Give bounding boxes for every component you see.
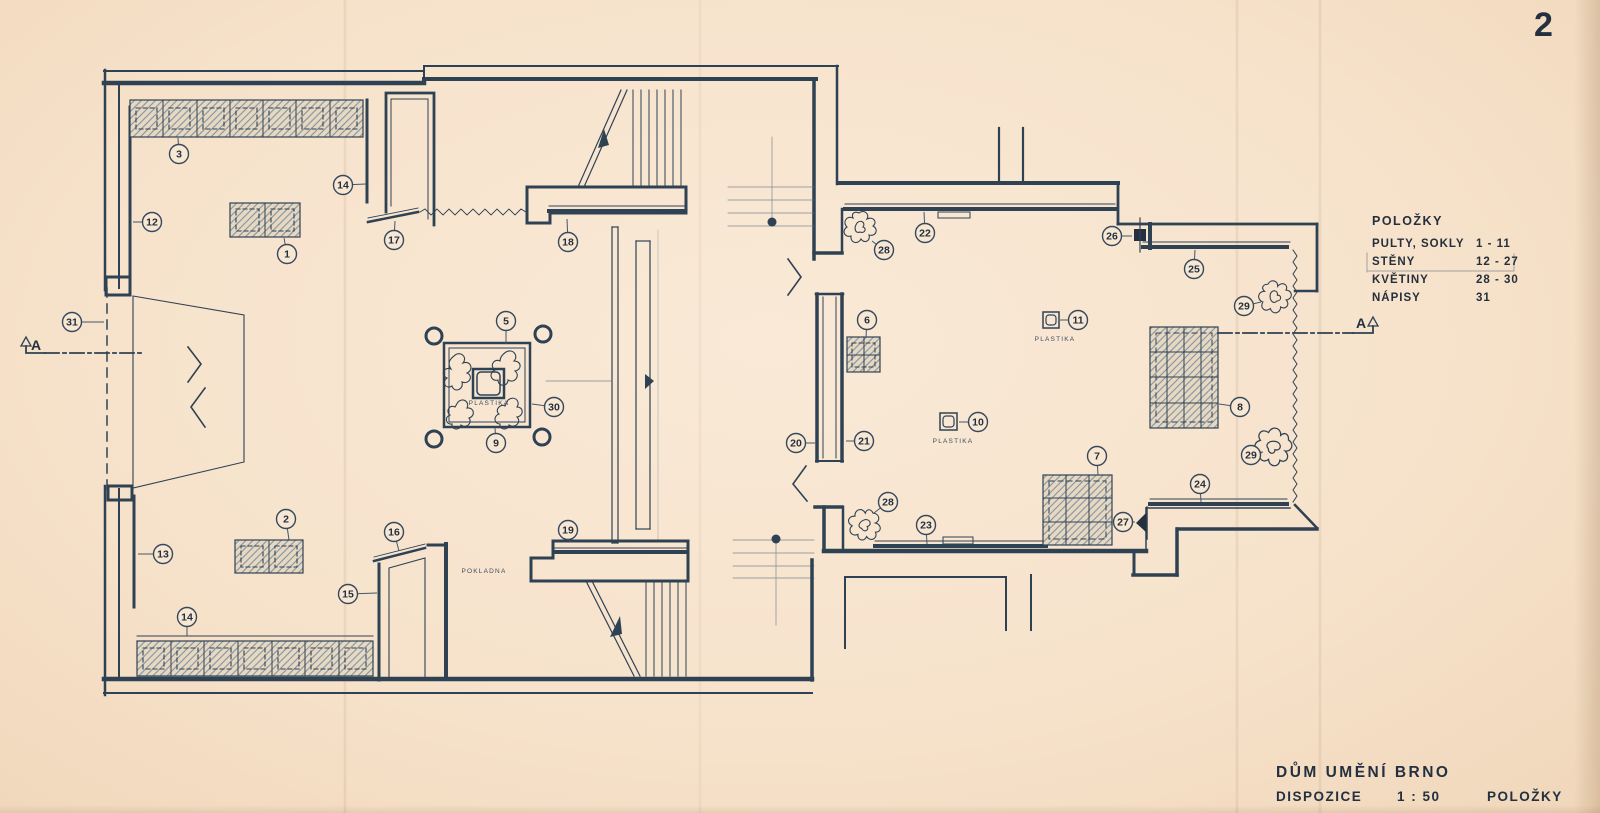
- svg-text:15: 15: [342, 589, 354, 601]
- svg-text:9: 9: [493, 438, 499, 450]
- bottom-staircase-hall: [374, 535, 814, 681]
- section-letter-a-left: A: [31, 337, 41, 353]
- central-ramp: [546, 227, 658, 543]
- item-marker-17: 17: [385, 221, 404, 250]
- legend-label: KVĚTINY: [1372, 271, 1476, 289]
- platform-7: [1043, 475, 1112, 545]
- room-label: PLASTIKA: [1035, 336, 1076, 343]
- room-label: PLASTIKA: [469, 400, 510, 407]
- svg-text:1: 1: [284, 249, 290, 261]
- item-marker-2: 2: [277, 510, 296, 541]
- svg-text:18: 18: [562, 237, 574, 249]
- svg-text:16: 16: [388, 527, 400, 539]
- floor-plan-drawing: A A 123567891011121314141516171819202122…: [0, 0, 1600, 813]
- svg-text:17: 17: [388, 235, 400, 247]
- flower-bed-sculpture: [426, 326, 551, 447]
- item-marker-21: 21: [846, 432, 874, 451]
- top-staircase-hall: [368, 66, 838, 259]
- svg-text:21: 21: [858, 436, 870, 448]
- sheet-name: POLOŽKY: [1487, 789, 1563, 804]
- legend-value: 31: [1476, 289, 1491, 307]
- item-marker-11: 11: [1060, 311, 1088, 330]
- legend-row: STĚNY 12 - 27: [1372, 253, 1542, 271]
- item-marker-5: 5: [497, 312, 516, 345]
- scanned-floor-plan-page: { "page_number": "2", "legend": { "title…: [0, 0, 1600, 813]
- svg-text:14: 14: [337, 180, 349, 192]
- item-marker-23: 23: [917, 516, 936, 545]
- svg-text:11: 11: [1072, 315, 1083, 327]
- legend-row: NÁPISY 31: [1372, 289, 1542, 307]
- item-marker-7: 7: [1088, 447, 1107, 476]
- room-label: PLASTIKA: [933, 438, 974, 445]
- legend-value: 1 - 11: [1476, 235, 1511, 253]
- svg-text:5: 5: [503, 316, 509, 328]
- svg-text:27: 27: [1117, 517, 1129, 529]
- item-marker-29: 29: [1235, 297, 1262, 316]
- svg-text:7: 7: [1094, 451, 1100, 463]
- item-marker-19: 19: [559, 521, 578, 543]
- item-marker-16: 16: [385, 523, 404, 552]
- svg-text:13: 13: [157, 549, 169, 561]
- left-gallery-walls: [104, 66, 812, 695]
- svg-text:6: 6: [864, 315, 870, 327]
- legend-row: PULTY, SOKLY 1 - 11: [1372, 235, 1542, 253]
- item-marker-9: 9: [487, 428, 506, 453]
- item-marker-8: 8: [1219, 398, 1250, 417]
- room-label: POKLADNA: [461, 568, 506, 575]
- svg-text:31: 31: [66, 317, 78, 329]
- svg-text:14: 14: [181, 612, 193, 624]
- item-marker-31: 31: [63, 313, 105, 332]
- item-marker-6: 6: [858, 311, 877, 338]
- svg-text:28: 28: [878, 245, 890, 257]
- item-marker-14: 14: [178, 608, 197, 637]
- display-cases-top-row: [130, 100, 363, 137]
- item-marker-1: 1: [278, 238, 297, 264]
- svg-text:28: 28: [882, 497, 894, 509]
- item-27-marker-flag: [1136, 512, 1147, 533]
- page-number: 2: [1534, 6, 1553, 45]
- svg-text:26: 26: [1106, 231, 1118, 243]
- item-marker-3: 3: [170, 138, 189, 164]
- svg-text:12: 12: [146, 217, 158, 229]
- svg-text:29: 29: [1238, 301, 1250, 313]
- legend-value: 28 - 30: [1476, 271, 1519, 289]
- entrance-vestibule: [133, 296, 244, 488]
- legend-row: KVĚTINY 28 - 30: [1372, 271, 1542, 289]
- platform-8: [1150, 327, 1218, 428]
- item-marker-30: 30: [532, 398, 564, 417]
- drawing-name: DISPOZICE: [1276, 789, 1362, 804]
- svg-text:3: 3: [176, 149, 182, 161]
- item-marker-22: 22: [916, 212, 935, 243]
- corridor-partition: [788, 209, 880, 551]
- section-line-right: [1218, 317, 1378, 333]
- sculpture-pedestal-10: [940, 413, 957, 430]
- svg-text:22: 22: [919, 228, 931, 240]
- item-marker-10: 10: [959, 413, 988, 432]
- svg-text:8: 8: [1237, 402, 1243, 414]
- drawing-scale: 1 : 50: [1397, 789, 1441, 804]
- exhibit-table-1: [230, 203, 300, 237]
- item-marker-26: 26: [1103, 227, 1133, 246]
- svg-text:20: 20: [790, 438, 802, 450]
- legend: POLOŽKY PULTY, SOKLY 1 - 11 STĚNY 12 - 2…: [1372, 214, 1542, 307]
- item-marker-25: 25: [1185, 250, 1204, 279]
- item-marker-27: 27: [1114, 513, 1136, 532]
- title-block: DŮM UMĚNÍ BRNO DISPOZICE 1 : 50 POLOŽKY: [1276, 764, 1596, 805]
- exhibit-table-2: [235, 540, 303, 573]
- section-letter-a-right: A: [1356, 315, 1366, 331]
- svg-text:2: 2: [283, 514, 289, 526]
- item-marker-12: 12: [133, 213, 162, 232]
- sculpture-pedestal-11: [1043, 312, 1059, 328]
- item-marker-18: 18: [559, 219, 578, 252]
- right-gallery-walls: [824, 128, 1317, 648]
- item-marker-15: 15: [339, 585, 378, 604]
- curtain-wall-zigzag: [1293, 250, 1297, 502]
- item-marker-28: 28: [872, 241, 894, 260]
- item-marker-13: 13: [138, 545, 173, 564]
- svg-text:24: 24: [1194, 479, 1206, 491]
- display-cases-bottom-row: [137, 636, 373, 676]
- item-marker-14: 14: [334, 176, 367, 195]
- svg-text:10: 10: [972, 417, 984, 429]
- svg-text:30: 30: [548, 402, 560, 414]
- item-marker-28: 28: [874, 493, 898, 514]
- svg-text:19: 19: [562, 525, 574, 537]
- legend-title: POLOŽKY: [1372, 214, 1542, 228]
- legend-label: PULTY, SOKLY: [1372, 235, 1476, 253]
- legend-label: NÁPISY: [1372, 289, 1476, 307]
- item-marker-20: 20: [787, 434, 816, 453]
- item-marker-24: 24: [1191, 475, 1210, 503]
- legend-label: STĚNY: [1372, 253, 1476, 271]
- item-marker-29: 29: [1242, 446, 1264, 465]
- svg-text:29: 29: [1245, 450, 1257, 462]
- column-dot: [772, 535, 781, 544]
- project-title: DŮM UMĚNÍ BRNO: [1276, 764, 1596, 782]
- column-dot: [768, 218, 777, 227]
- flower-squiggles: [443, 351, 522, 429]
- svg-text:25: 25: [1188, 264, 1200, 276]
- svg-text:23: 23: [920, 520, 932, 532]
- legend-value: 12 - 27: [1476, 253, 1519, 271]
